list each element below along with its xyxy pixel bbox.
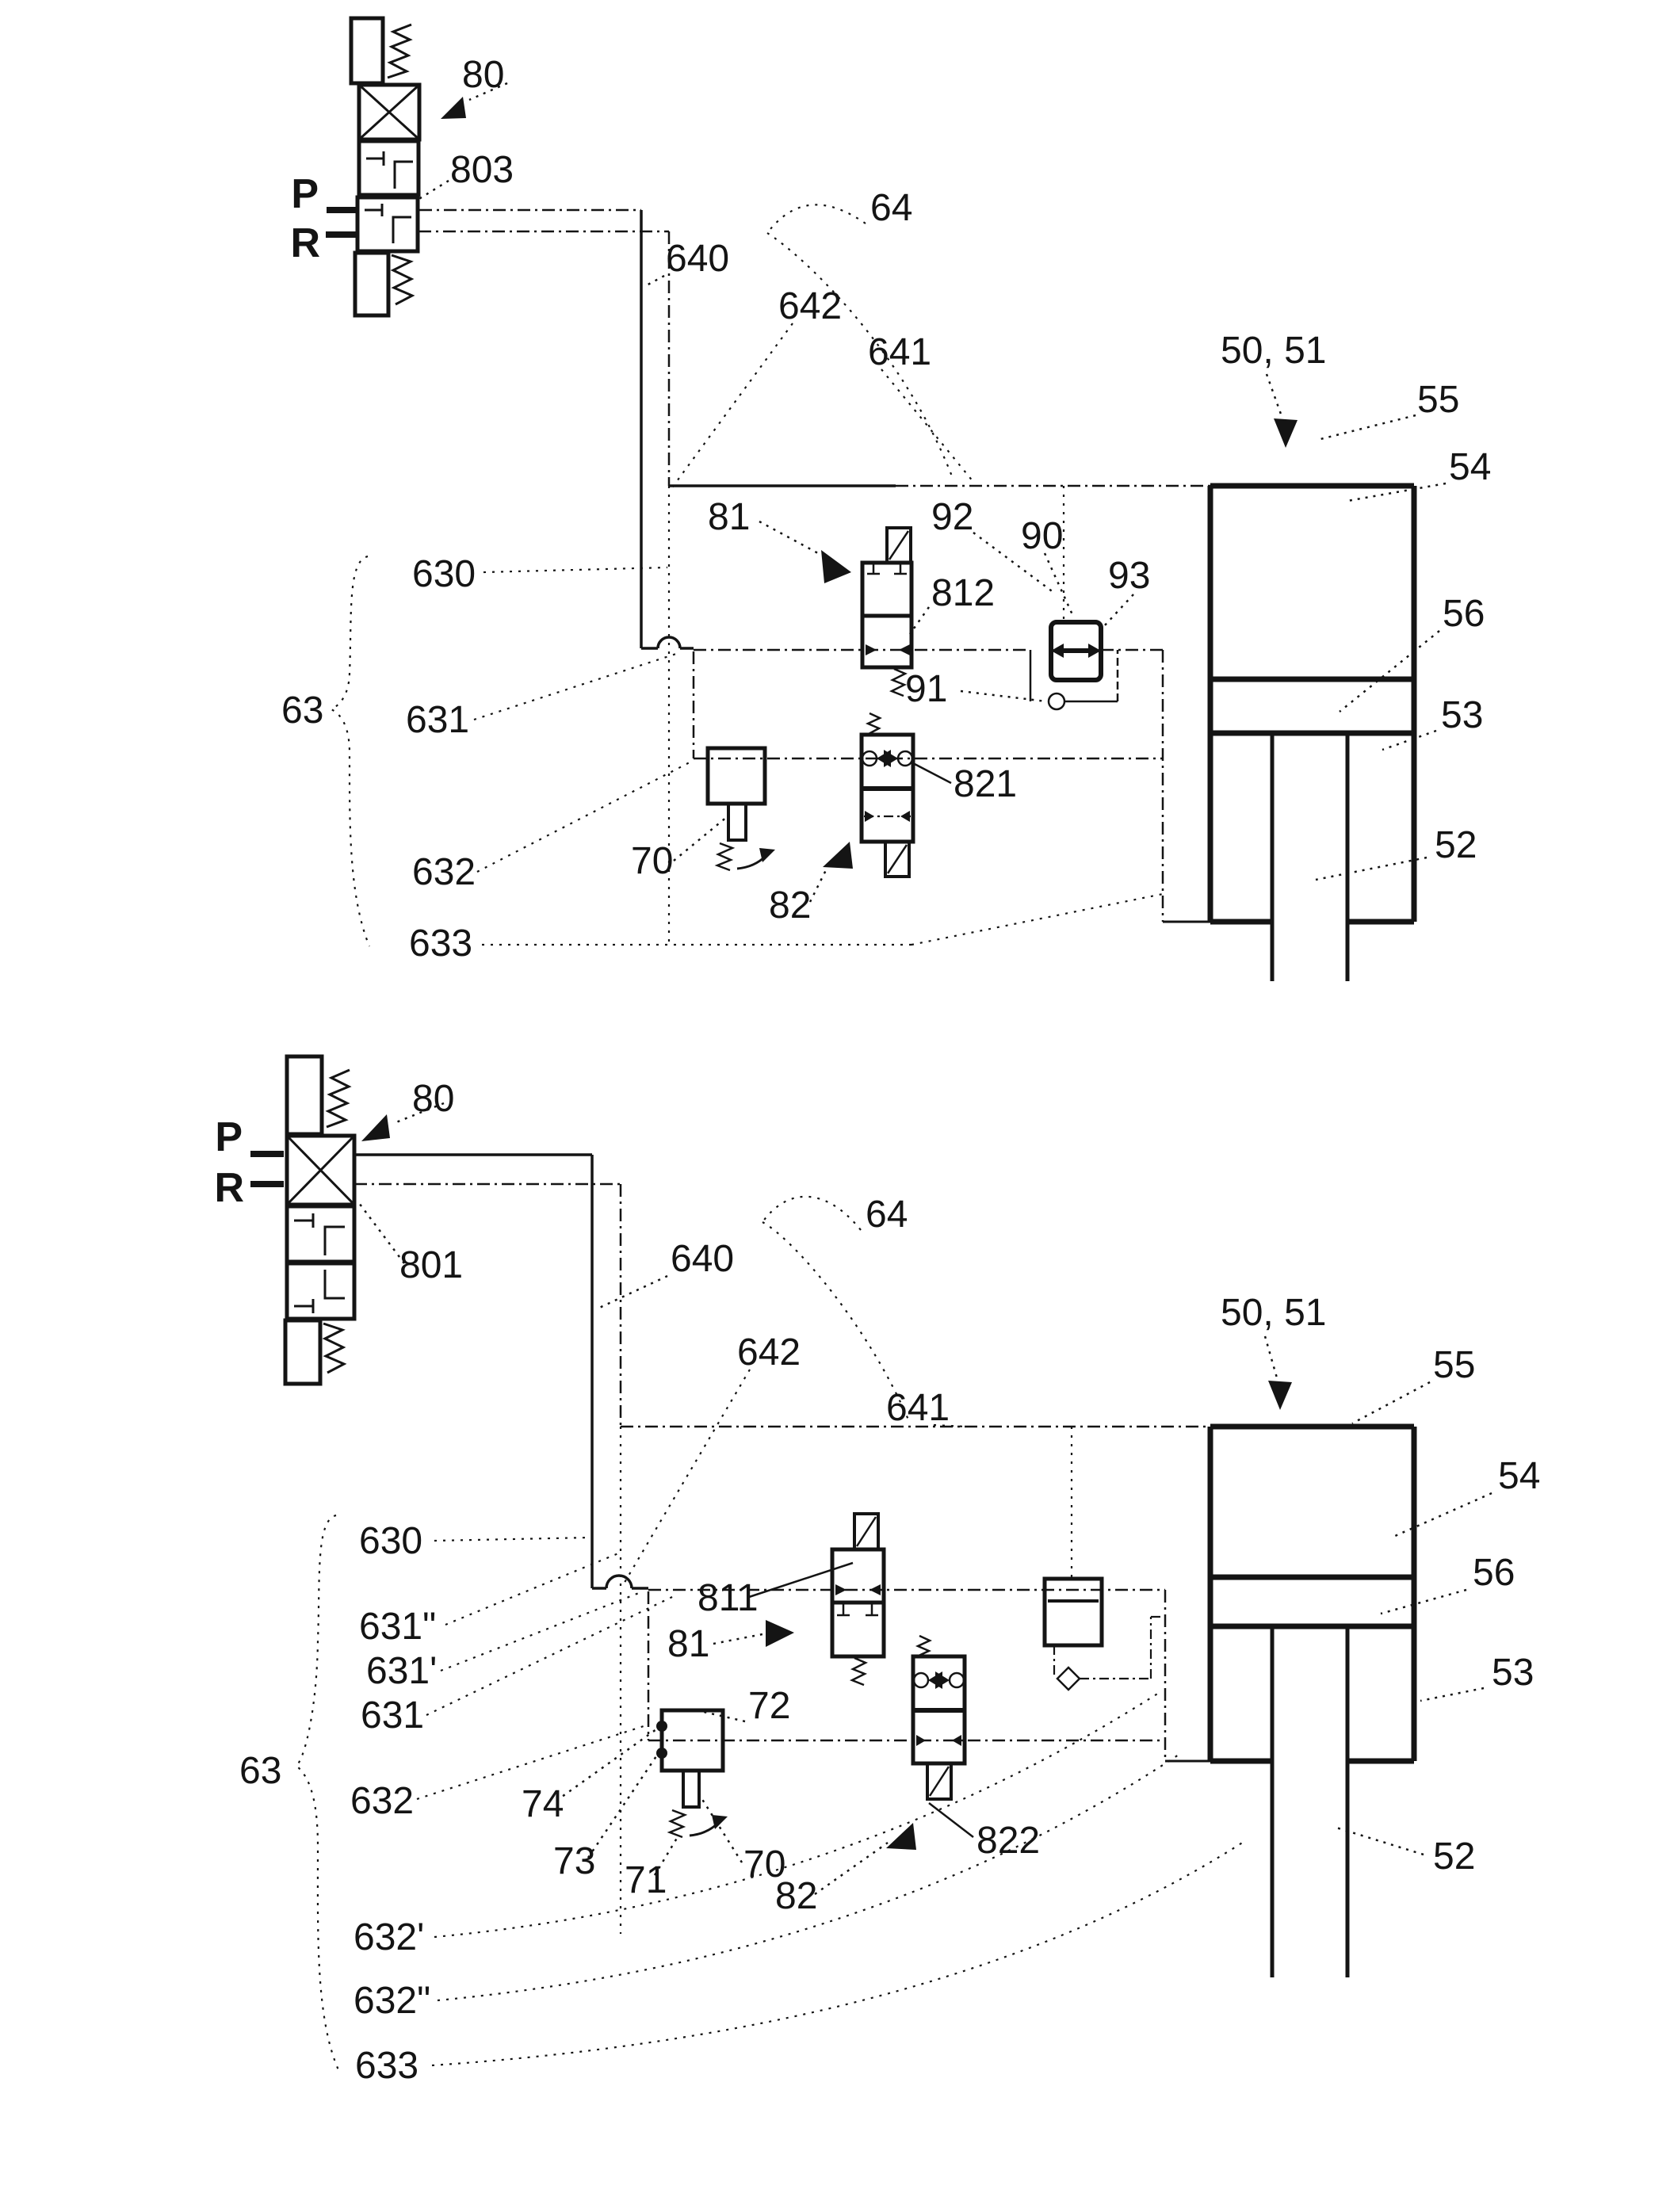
label-52-b: 52 (1433, 1836, 1475, 1878)
label-641: 641 (868, 331, 931, 373)
label-70: 70 (631, 840, 673, 882)
arrow-to-valve-81-b (766, 1620, 794, 1647)
button-70-symbol (708, 748, 775, 870)
label-80-b: 80 (412, 1078, 454, 1120)
label-812: 812 (931, 572, 995, 614)
label-632dd: 632" (354, 1980, 430, 2022)
label-631: 631 (406, 699, 469, 741)
brace-64-b (762, 1197, 861, 1230)
label-633-b: 633 (355, 2045, 418, 2087)
label-642: 642 (778, 285, 842, 327)
arrow-to-valve-80-b (361, 1114, 390, 1141)
label-50-51: 50, 51 (1221, 330, 1326, 372)
label-63: 63 (281, 690, 323, 732)
label-56-b: 56 (1473, 1552, 1515, 1594)
label-630: 630 (412, 553, 476, 595)
pilot-box-symbol-b (1045, 1579, 1165, 1690)
valve-82-symbol (862, 713, 913, 877)
label-803: 803 (450, 149, 514, 191)
brace-64 (767, 204, 866, 233)
label-631-b: 631 (361, 1694, 424, 1736)
button-70-symbol-b (656, 1710, 728, 1837)
figure-bottom: P R 80 801 (214, 1056, 1540, 2087)
label-81-b: 81 (667, 1623, 709, 1665)
label-81: 81 (708, 496, 750, 538)
label-56: 56 (1443, 593, 1485, 635)
label-93: 93 (1108, 555, 1150, 597)
valve-81-symbol-b (832, 1514, 884, 1685)
port-r-label: R (290, 220, 320, 266)
valve-80-symbol: P R (290, 18, 419, 315)
label-54: 54 (1449, 446, 1491, 488)
line-631 (694, 650, 1210, 922)
label-71: 71 (625, 1859, 667, 1901)
label-640: 640 (666, 238, 729, 280)
label-632: 632 (412, 851, 476, 893)
arrow-to-cylinder (1274, 418, 1298, 448)
label-64-b: 64 (866, 1194, 908, 1236)
shuttle-93-symbol (1051, 622, 1101, 680)
label-53-b: 53 (1492, 1652, 1534, 1694)
label-53: 53 (1441, 694, 1483, 736)
port-p-label-b: P (215, 1114, 243, 1160)
label-74: 74 (522, 1783, 564, 1825)
arrow-to-valve-82 (823, 842, 853, 869)
label-633: 633 (409, 923, 472, 965)
valve-81-symbol (862, 528, 912, 696)
arrow-to-valve-82-b (886, 1823, 916, 1850)
figure-top: P R 80 803 (281, 18, 1491, 981)
cylinder-symbol-b (1210, 1427, 1414, 1977)
label-91: 91 (905, 668, 947, 710)
label-641-b: 641 (886, 1387, 950, 1429)
pneumatic-diagram-svg: P R 80 803 (0, 0, 1674, 2212)
label-55-b: 55 (1433, 1344, 1475, 1386)
label-632-b: 632 (350, 1780, 414, 1822)
label-63-b: 63 (239, 1750, 281, 1792)
label-822: 822 (976, 1820, 1040, 1862)
label-70-b: 70 (743, 1843, 785, 1885)
label-54-b: 54 (1498, 1455, 1540, 1497)
port-p-label: P (291, 171, 319, 217)
label-640-b: 640 (671, 1238, 734, 1280)
label-631dd: 631" (359, 1606, 436, 1648)
valve-82-symbol-b (913, 1636, 965, 1799)
label-73: 73 (553, 1840, 595, 1882)
line-641-b (621, 1427, 1210, 1579)
label-64: 64 (870, 187, 912, 229)
cylinder-symbol (1210, 486, 1414, 981)
line-633 (482, 894, 1163, 945)
label-55: 55 (1417, 379, 1459, 421)
label-72: 72 (748, 1685, 790, 1727)
label-630-b: 630 (359, 1520, 422, 1562)
label-52: 52 (1435, 824, 1477, 866)
label-82: 82 (769, 884, 811, 926)
patent-figure-page: P R 80 803 (0, 0, 1674, 2212)
label-821: 821 (954, 763, 1017, 805)
label-811: 811 (697, 1577, 759, 1619)
label-801: 801 (399, 1244, 463, 1286)
valve-80-symbol-b: P R (214, 1056, 354, 1384)
label-90: 90 (1021, 515, 1063, 557)
arrow-to-valve-80 (441, 97, 466, 119)
label-631d: 631' (366, 1650, 437, 1692)
label-92: 92 (931, 496, 973, 538)
label-50-51-b: 50, 51 (1221, 1292, 1326, 1334)
label-632d: 632' (354, 1916, 424, 1958)
label-642-b: 642 (737, 1331, 801, 1373)
arrow-to-valve-81 (821, 550, 851, 583)
brace-63 (331, 556, 369, 946)
label-80: 80 (462, 54, 504, 96)
port-r-label-b: R (214, 1165, 244, 1211)
brace-63-b (296, 1515, 339, 2072)
arrow-to-cylinder-b (1268, 1381, 1292, 1410)
